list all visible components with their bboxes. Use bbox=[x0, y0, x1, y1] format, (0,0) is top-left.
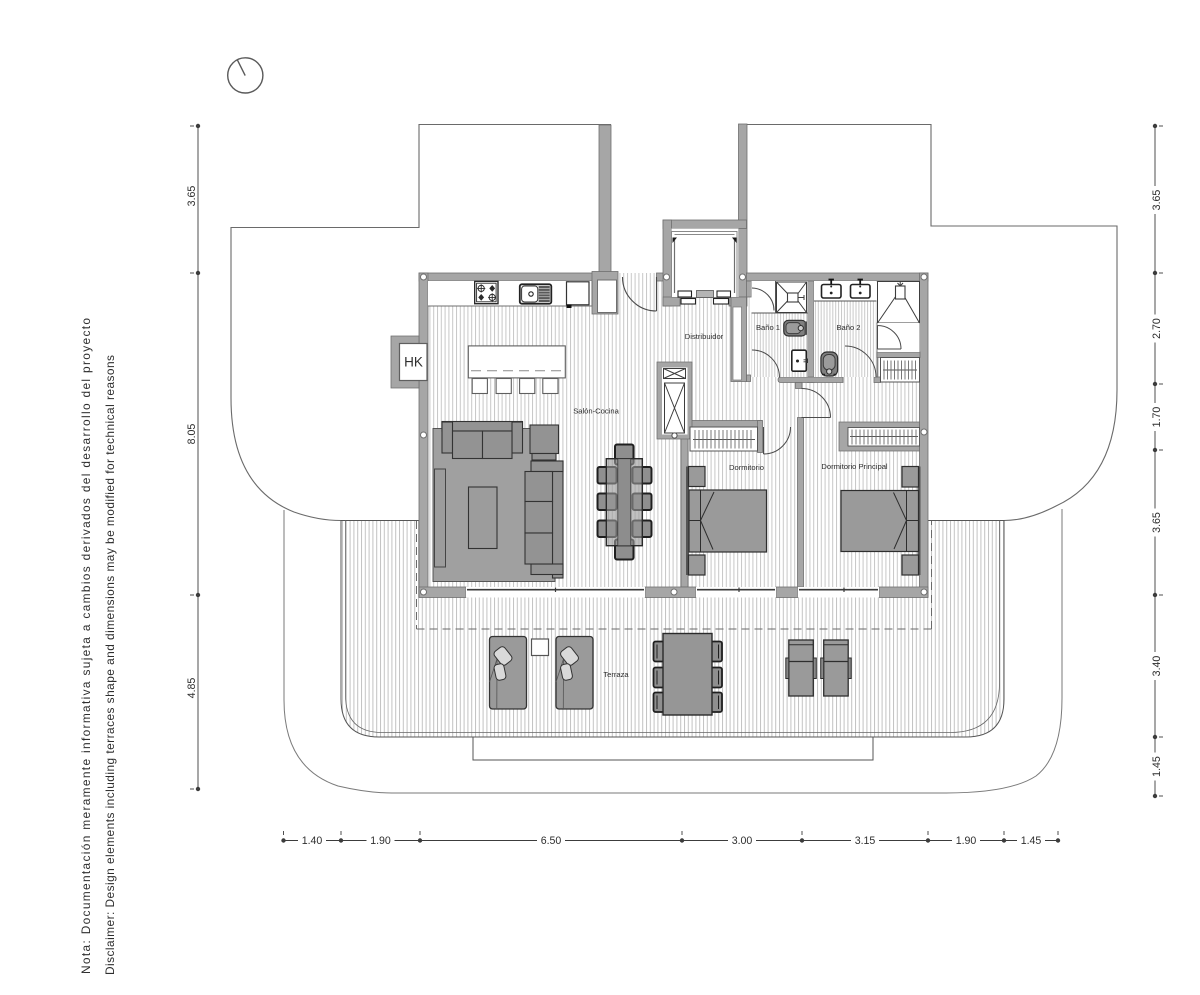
svg-text:Dormitorio: Dormitorio bbox=[729, 463, 764, 472]
svg-text:Nota: Documentación meramente: Nota: Documentación meramente informativ… bbox=[79, 318, 93, 974]
svg-text:6.50: 6.50 bbox=[541, 835, 562, 847]
svg-text:1.70: 1.70 bbox=[1151, 407, 1163, 428]
svg-text:8.05: 8.05 bbox=[186, 424, 198, 445]
svg-text:1.45: 1.45 bbox=[1021, 835, 1042, 847]
svg-text:Terraza: Terraza bbox=[603, 670, 629, 679]
svg-text:Baño 1: Baño 1 bbox=[756, 323, 780, 332]
svg-text:3.65: 3.65 bbox=[1151, 190, 1163, 211]
svg-text:1.40: 1.40 bbox=[302, 835, 323, 847]
svg-text:HK: HK bbox=[404, 355, 423, 370]
svg-text:Baño 2: Baño 2 bbox=[836, 323, 860, 332]
svg-text:2.70: 2.70 bbox=[1151, 318, 1163, 339]
svg-text:Dormitorio Principal: Dormitorio Principal bbox=[821, 462, 888, 471]
svg-text:3.15: 3.15 bbox=[855, 835, 876, 847]
svg-text:1.90: 1.90 bbox=[370, 835, 391, 847]
svg-text:Disclaimer: Design elements in: Disclaimer: Design elements including te… bbox=[103, 355, 117, 975]
svg-text:Distribuidor: Distribuidor bbox=[685, 332, 724, 341]
svg-text:3.00: 3.00 bbox=[732, 835, 753, 847]
svg-text:Salón-Cocina: Salón-Cocina bbox=[573, 407, 619, 416]
svg-text:3.65: 3.65 bbox=[186, 186, 198, 207]
svg-text:1.90: 1.90 bbox=[956, 835, 977, 847]
svg-text:1.45: 1.45 bbox=[1151, 756, 1163, 777]
svg-text:3.65: 3.65 bbox=[1151, 512, 1163, 533]
svg-text:4.85: 4.85 bbox=[186, 678, 198, 699]
svg-text:3.40: 3.40 bbox=[1151, 656, 1163, 677]
